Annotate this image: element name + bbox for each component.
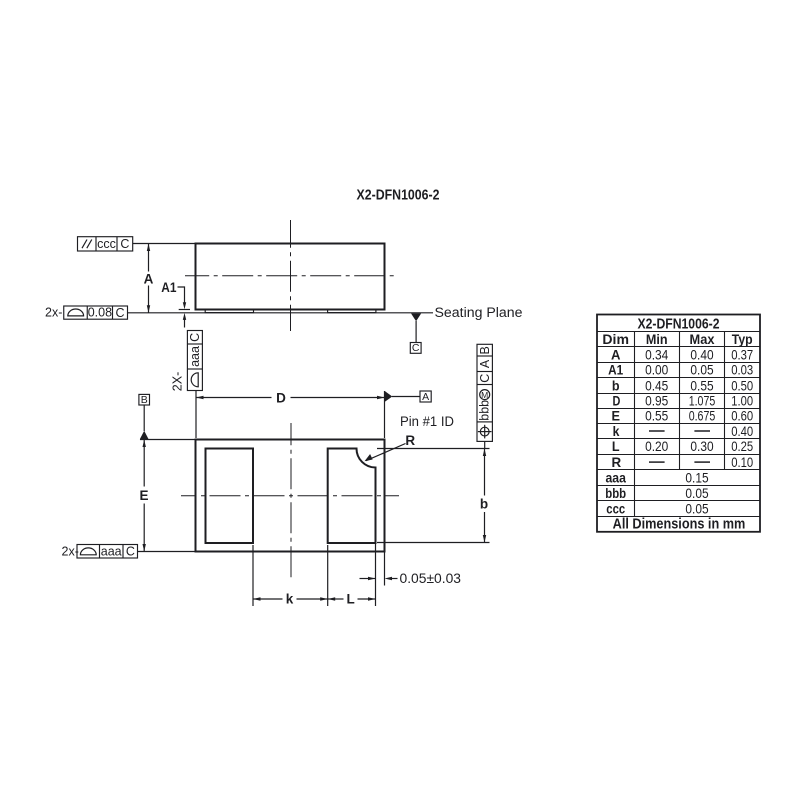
svg-text:bbb: bbb <box>605 485 626 501</box>
svg-text:0.45: 0.45 <box>645 378 668 393</box>
svg-text:M: M <box>481 390 488 400</box>
svg-text:C: C <box>120 237 129 251</box>
svg-text:ccc: ccc <box>97 237 116 251</box>
svg-text:b: b <box>480 497 488 512</box>
svg-text:k: k <box>286 592 294 607</box>
svg-text:0.05: 0.05 <box>685 501 708 516</box>
svg-text:Min: Min <box>646 331 668 347</box>
svg-text:0.15: 0.15 <box>685 471 708 486</box>
svg-text:0.95: 0.95 <box>645 393 668 408</box>
svg-text:0.10: 0.10 <box>731 455 753 470</box>
svg-text:A: A <box>422 391 429 403</box>
svg-text:Seating Plane: Seating Plane <box>435 305 523 320</box>
svg-text:2x-: 2x- <box>62 545 79 559</box>
svg-text:B: B <box>141 394 148 406</box>
svg-text:D: D <box>276 390 286 405</box>
svg-text:C: C <box>478 374 492 383</box>
svg-text:All Dimensions in mm: All Dimensions in mm <box>613 517 746 533</box>
svg-text:A: A <box>478 359 492 368</box>
svg-text:L: L <box>346 592 354 607</box>
svg-text:0.55: 0.55 <box>690 378 713 393</box>
svg-text:2X-: 2X- <box>171 372 185 391</box>
svg-text:0.34: 0.34 <box>645 347 668 362</box>
svg-text:C: C <box>126 545 135 559</box>
svg-text:b: b <box>612 377 620 393</box>
svg-text:Typ: Typ <box>732 331 753 347</box>
svg-text:0.08: 0.08 <box>88 306 112 320</box>
svg-text:aaa: aaa <box>101 544 122 558</box>
svg-text:A: A <box>144 271 154 286</box>
svg-text:aaa: aaa <box>188 346 202 367</box>
svg-text:2x-: 2x- <box>45 306 62 320</box>
svg-text:0.37: 0.37 <box>731 347 753 362</box>
svg-text:0.55: 0.55 <box>645 408 668 423</box>
svg-text:B: B <box>478 346 492 354</box>
svg-text:E: E <box>611 407 620 423</box>
svg-text:0.40: 0.40 <box>690 347 713 362</box>
svg-text:A: A <box>611 346 621 362</box>
svg-text:0.40: 0.40 <box>731 424 753 439</box>
svg-text:0.05: 0.05 <box>690 363 713 378</box>
svg-text:k: k <box>613 423 620 439</box>
svg-text:0.20: 0.20 <box>645 439 668 454</box>
svg-text:A1: A1 <box>161 280 177 295</box>
svg-text:0.60: 0.60 <box>731 408 753 423</box>
svg-text:0.00: 0.00 <box>645 363 668 378</box>
svg-text:R: R <box>405 433 415 448</box>
svg-text:C: C <box>412 342 420 354</box>
svg-text:aaa: aaa <box>606 470 627 486</box>
svg-text:E: E <box>139 488 148 503</box>
svg-text:D: D <box>613 392 621 408</box>
svg-text:ccc: ccc <box>606 500 625 516</box>
svg-text:0.05: 0.05 <box>685 486 708 501</box>
svg-text:0.50: 0.50 <box>731 378 753 393</box>
svg-text:Pin #1 ID: Pin #1 ID <box>400 414 454 429</box>
svg-text:X2-DFN1006-2: X2-DFN1006-2 <box>357 187 440 204</box>
svg-text:1.00: 1.00 <box>731 393 753 408</box>
svg-text:0.25: 0.25 <box>731 439 753 454</box>
svg-text:C: C <box>188 333 202 342</box>
svg-text:Dim: Dim <box>602 331 629 347</box>
svg-text:Max: Max <box>690 331 715 347</box>
svg-text:R: R <box>612 454 622 470</box>
svg-text:L: L <box>612 438 620 454</box>
svg-text:C: C <box>115 306 124 320</box>
svg-text:0.30: 0.30 <box>690 439 713 454</box>
svg-text:0.05±0.03: 0.05±0.03 <box>400 571 462 586</box>
svg-text:1.075: 1.075 <box>689 393 716 408</box>
svg-text:bbb: bbb <box>478 400 492 421</box>
svg-text:0.675: 0.675 <box>689 408 716 423</box>
svg-text:A1: A1 <box>608 362 623 378</box>
svg-text:0.03: 0.03 <box>731 363 753 378</box>
